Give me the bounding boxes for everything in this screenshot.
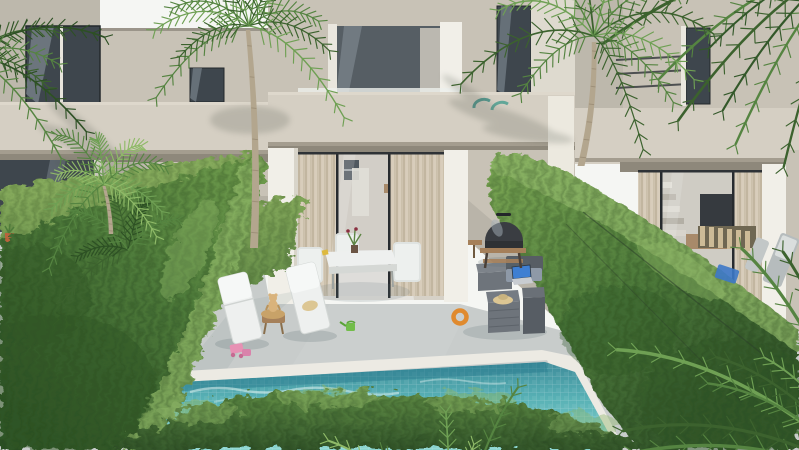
teddy-ear — [268, 293, 271, 296]
trunk-ring — [252, 139, 258, 140]
frond-leaflet — [120, 191, 121, 204]
frond-leaflet — [741, 28, 755, 29]
door-frame — [388, 152, 391, 298]
bbq-cart-top — [480, 248, 526, 253]
frond-leaflet — [739, 45, 740, 58]
slat — [727, 229, 732, 249]
frond-leaflet — [753, 249, 754, 260]
bbq-side-table — [468, 240, 482, 245]
frond-leaflet — [185, 50, 186, 59]
frond-leaflet — [156, 98, 157, 107]
parapet-highlight — [268, 92, 575, 95]
parapet-highlight — [0, 102, 268, 105]
frond-leaflet — [164, 86, 165, 95]
teddy-ear — [274, 293, 277, 296]
frond-leaflet — [173, 75, 174, 85]
frond-leaflet — [97, 264, 98, 274]
hat-crown — [498, 294, 508, 300]
frond-leaflet — [78, 158, 91, 159]
frond-leaflet — [766, 27, 780, 28]
trunk-ring — [108, 217, 112, 218]
frond-leaflet — [765, 261, 766, 273]
frond-leaflet — [608, 9, 609, 26]
bbq-cart-shelf — [483, 259, 523, 263]
trunk-ring — [247, 46, 251, 47]
frond-leaflet — [711, 36, 721, 37]
render-image: Aerial 3D render of a row of modern two-… — [0, 0, 799, 450]
pram-hood — [242, 349, 251, 356]
cube-top — [522, 287, 545, 298]
frond-leaflet — [157, 206, 158, 214]
trunk-ring — [109, 224, 113, 225]
left-villa-roof-edge — [100, 28, 268, 31]
ground-pillar-right — [444, 150, 468, 302]
trunk-ring — [592, 51, 596, 52]
slat — [718, 228, 723, 248]
frond-leaflet — [460, 84, 461, 93]
center-villa-side-wall — [531, 0, 575, 96]
dining-table-top — [325, 250, 397, 267]
slat — [709, 227, 714, 247]
left-villa-upper-window — [26, 26, 100, 104]
dining-chair — [394, 243, 420, 281]
right-villa-parapet — [575, 108, 799, 164]
trunk-ring — [251, 108, 256, 109]
door-frame — [336, 152, 339, 298]
frond-leaflet — [21, 98, 33, 99]
frond-leaflet — [666, 62, 676, 63]
frond-leaflet — [463, 72, 473, 73]
frond-leaflet — [66, 109, 76, 110]
bbq-handle — [496, 213, 511, 216]
slat — [745, 231, 750, 251]
frond-leaflet — [128, 198, 129, 210]
frond-leaflet — [540, 67, 541, 79]
frond-leaflet — [781, 378, 794, 379]
parapet-drip-line — [268, 142, 575, 146]
frond-shadow — [210, 106, 290, 134]
flower — [346, 229, 350, 233]
trunk-ring — [584, 139, 590, 140]
pram-wheel — [239, 354, 243, 358]
door-track — [638, 170, 764, 173]
cube-front — [523, 297, 545, 334]
frond-leaflet — [89, 139, 97, 140]
trunk-ring — [250, 77, 255, 78]
frond-leaflet — [72, 280, 81, 281]
frond-leaflet — [755, 29, 756, 43]
window-mullion — [60, 26, 63, 104]
frond-leaflet — [709, 80, 710, 91]
villa-scene: Aerial 3D render of a row of modern two-… — [0, 0, 799, 450]
frond-leaflet — [693, 100, 694, 110]
table-leg — [392, 271, 393, 287]
frond-leaflet — [71, 256, 78, 257]
frond-leaflet — [724, 62, 725, 74]
frond-leaflet — [179, 57, 180, 66]
frond-leaflet — [685, 70, 686, 80]
hedge-dark-clump — [560, 285, 680, 375]
frond-leaflet — [645, 65, 646, 77]
trunk-ring — [109, 231, 113, 232]
frond-leaflet — [56, 99, 57, 109]
trunk-ring — [252, 170, 258, 171]
table-plant-pot — [351, 245, 358, 253]
parapet-drip-line — [575, 158, 799, 162]
trunk-ring — [251, 232, 258, 233]
trunk-ring — [592, 69, 597, 70]
frond-leaflet — [318, 20, 327, 21]
frond-leaflet — [56, 203, 57, 211]
trunk-ring — [106, 203, 109, 204]
bbq-body — [485, 241, 523, 248]
trunk-ring — [580, 157, 586, 158]
can-body — [346, 323, 355, 331]
trunk-ring — [105, 196, 108, 197]
trunk-ring — [107, 210, 110, 211]
flower — [354, 227, 358, 231]
trunk-ring — [103, 189, 106, 190]
laptop — [512, 265, 533, 285]
rattan-cube-right — [522, 287, 545, 334]
trunk-ring — [587, 122, 592, 123]
trunk-ring — [591, 86, 596, 87]
balcony-frame — [328, 24, 337, 96]
slat — [700, 226, 705, 246]
frond-leaflet — [534, 75, 535, 86]
furniture-shadow — [310, 282, 410, 302]
trunk-ring — [252, 201, 259, 202]
frond-leaflet — [102, 212, 103, 222]
door-track — [295, 152, 445, 155]
frond-leaflet — [48, 203, 56, 204]
pram-wheel — [231, 353, 235, 357]
trunk-ring — [589, 104, 594, 105]
